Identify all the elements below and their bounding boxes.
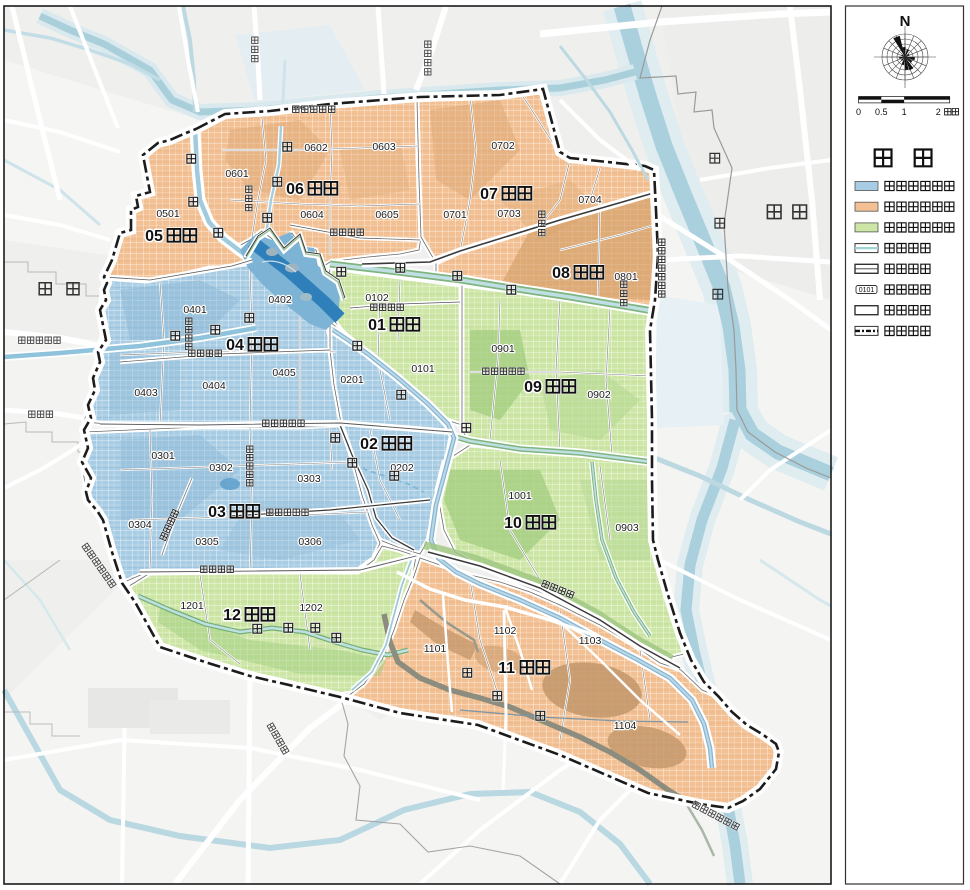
svg-text:0501: 0501	[156, 208, 180, 220]
svg-text:1101: 1101	[424, 643, 447, 655]
svg-text:03: 03	[208, 504, 226, 521]
svg-text:02: 02	[360, 436, 378, 453]
svg-text:01: 01	[368, 317, 386, 334]
svg-text:1202: 1202	[299, 602, 323, 614]
svg-text:0701: 0701	[443, 209, 467, 221]
svg-text:0601: 0601	[225, 168, 249, 180]
svg-text:1103: 1103	[579, 635, 602, 647]
svg-text:07: 07	[480, 186, 498, 203]
svg-text:0703: 0703	[497, 208, 521, 220]
svg-text:1102: 1102	[494, 625, 517, 637]
svg-text:05: 05	[145, 228, 163, 245]
svg-text:0704: 0704	[578, 194, 602, 206]
svg-text:1001: 1001	[508, 490, 532, 502]
svg-text:0: 0	[856, 107, 861, 117]
svg-text:06: 06	[286, 181, 304, 198]
svg-text:0405: 0405	[272, 367, 296, 379]
svg-text:10: 10	[504, 515, 522, 532]
svg-text:0402: 0402	[268, 294, 292, 306]
svg-text:11: 11	[498, 660, 515, 677]
svg-text:0902: 0902	[587, 389, 611, 401]
svg-text:0201: 0201	[340, 374, 364, 386]
svg-text:0101: 0101	[411, 363, 435, 375]
svg-text:0303: 0303	[297, 473, 321, 485]
svg-text:0302: 0302	[209, 462, 233, 474]
svg-text:08: 08	[552, 265, 570, 282]
svg-text:1201: 1201	[180, 600, 204, 612]
svg-text:0305: 0305	[195, 536, 219, 548]
svg-text:1104: 1104	[614, 720, 637, 732]
svg-text:0301: 0301	[151, 450, 175, 462]
svg-text:0605: 0605	[375, 209, 399, 221]
svg-text:0101: 0101	[859, 287, 875, 294]
svg-text:0306: 0306	[298, 536, 322, 548]
svg-text:0603: 0603	[372, 141, 396, 153]
svg-text:0901: 0901	[491, 343, 515, 355]
svg-text:0401: 0401	[183, 304, 207, 316]
svg-text:1: 1	[902, 107, 907, 117]
svg-text:0.5: 0.5	[875, 107, 888, 117]
svg-text:2: 2	[936, 107, 941, 117]
svg-text:0702: 0702	[491, 140, 515, 152]
svg-text:0102: 0102	[365, 292, 389, 304]
svg-text:0403: 0403	[134, 387, 158, 399]
svg-text:0404: 0404	[202, 380, 226, 392]
svg-text:0602: 0602	[304, 142, 328, 154]
svg-text:12: 12	[223, 607, 241, 624]
svg-text:0304: 0304	[128, 519, 152, 531]
svg-text:0903: 0903	[615, 522, 639, 534]
svg-text:09: 09	[524, 379, 542, 396]
svg-text:04: 04	[226, 337, 244, 354]
svg-text:0604: 0604	[300, 209, 324, 221]
